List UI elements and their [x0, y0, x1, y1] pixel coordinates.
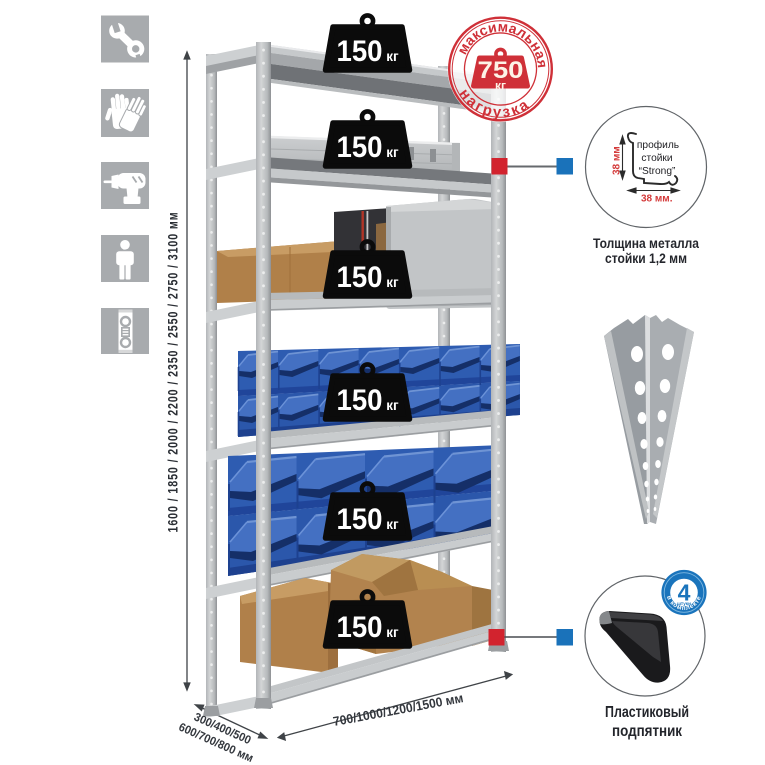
svg-text:стойки: стойки [641, 153, 672, 164]
svg-text:38 мм.: 38 мм. [641, 194, 673, 205]
svg-text:профиль: профиль [637, 139, 679, 151]
svg-text:1600 / 1850 / 2000 / 2200 / 23: 1600 / 1850 / 2000 / 2200 / 2350 / 2550 … [165, 212, 181, 533]
svg-text:Толщина металла: Толщина металла [593, 236, 699, 252]
svg-text:стойки 1,2 мм: стойки 1,2 мм [605, 251, 687, 267]
svg-text:700/1000/1200/1500 мм: 700/1000/1200/1500 мм [332, 691, 465, 729]
svg-text:кг: кг [495, 79, 506, 93]
svg-text:Пластиковый: Пластиковый [605, 704, 689, 721]
svg-text:“Strong”: “Strong” [639, 166, 676, 177]
svg-text:38 мм: 38 мм [612, 146, 623, 175]
svg-text:подпятник: подпятник [612, 723, 682, 740]
